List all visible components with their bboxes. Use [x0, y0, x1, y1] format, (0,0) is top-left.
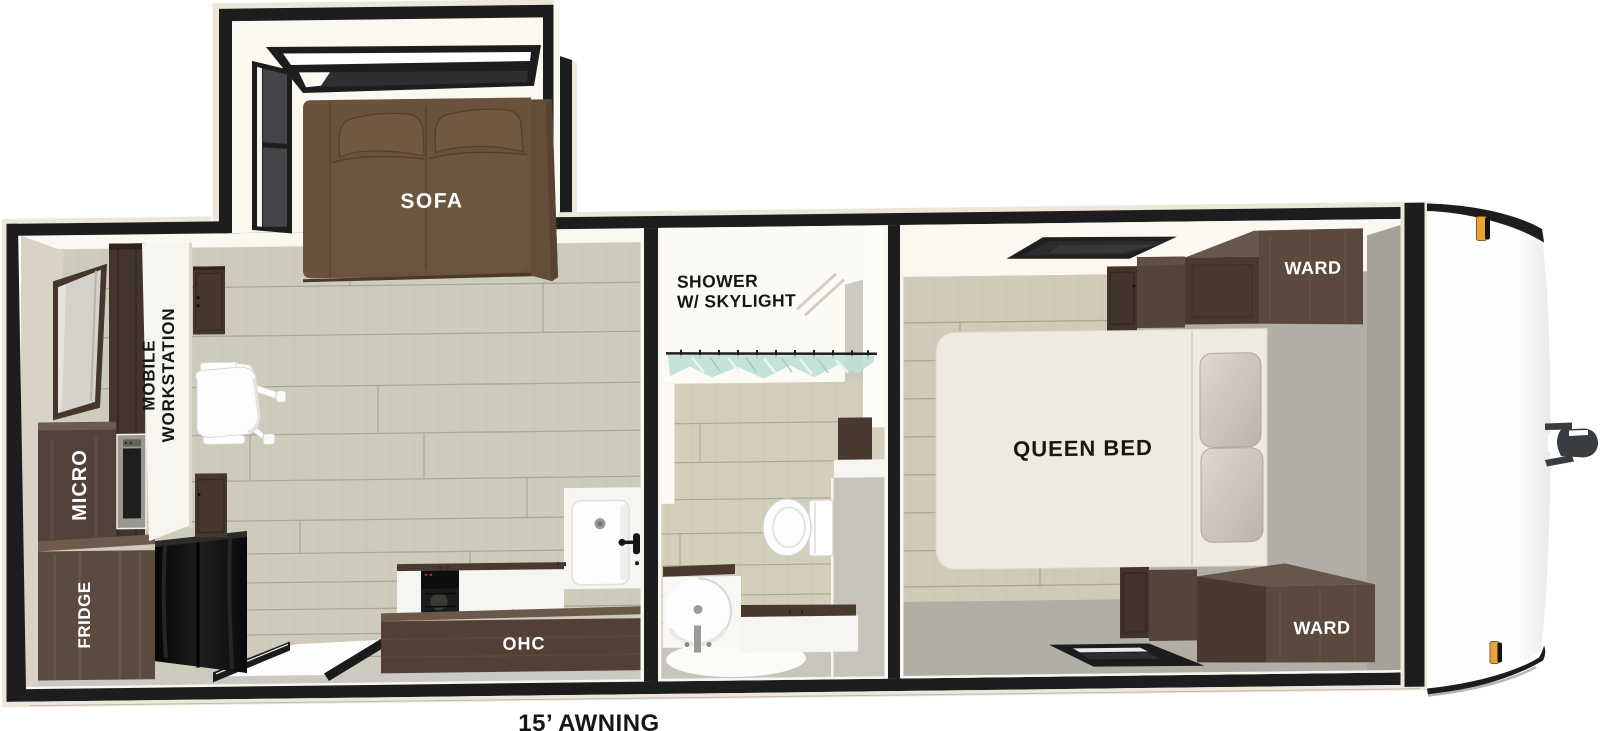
svg-text:15’ AWNING: 15’ AWNING [518, 710, 659, 731]
svg-text:QUEEN BED: QUEEN BED [1013, 435, 1153, 462]
svg-text:WARD: WARD [1285, 258, 1342, 279]
svg-text:SOFA: SOFA [400, 189, 463, 213]
svg-text:FRIDGE: FRIDGE [75, 581, 94, 648]
svg-text:W/ SKYLIGHT: W/ SKYLIGHT [677, 290, 796, 311]
svg-text:SHOWER: SHOWER [677, 271, 758, 292]
svg-text:WARD: WARD [1294, 618, 1351, 639]
svg-text:OHC: OHC [503, 633, 546, 654]
svg-text:MICRO: MICRO [69, 449, 91, 521]
